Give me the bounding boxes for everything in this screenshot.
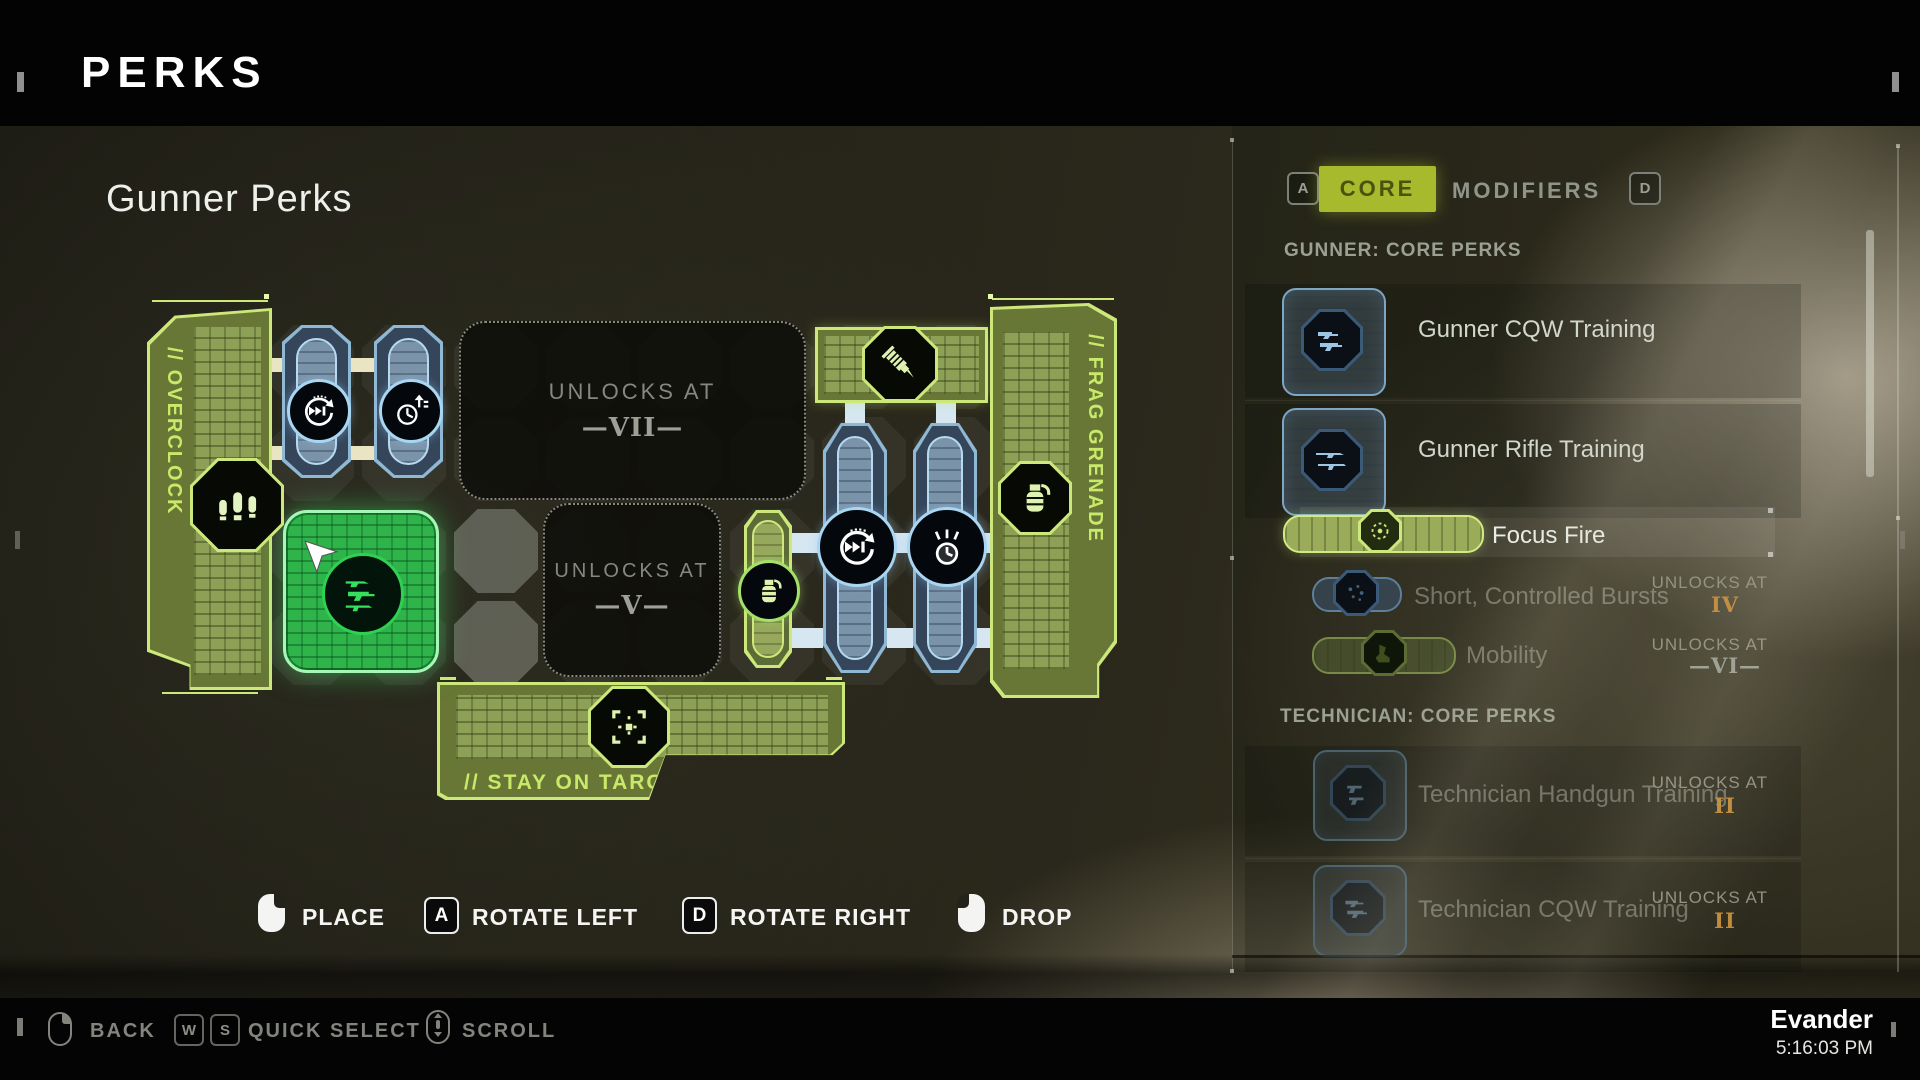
- cursor-icon: [302, 538, 340, 581]
- connector: [845, 403, 865, 425]
- boot-icon: [1361, 630, 1407, 676]
- rifle-icon: [1301, 429, 1363, 491]
- unlock-text: UNLOCKS AT: [554, 560, 709, 583]
- perks-screen: PERKS Gunner Perks UNLOCK: [0, 0, 1920, 1080]
- edge-dot: [1896, 516, 1900, 520]
- board-cell-highlight[interactable]: [454, 601, 538, 685]
- tab-core[interactable]: CORE: [1319, 166, 1436, 212]
- edge-dot: [1896, 144, 1900, 148]
- divider-dot: [1230, 556, 1234, 560]
- perk-name: Short, Controlled Bursts: [1414, 583, 1669, 611]
- unlock-level: —VI—: [1648, 653, 1768, 678]
- key-d-label: D: [693, 905, 707, 927]
- unlock-level: IV: [1648, 592, 1768, 617]
- bracket-line: [162, 692, 258, 694]
- bracket-line: [992, 298, 1114, 300]
- burst-icon: [1333, 570, 1379, 616]
- board-cell-highlight[interactable]: [454, 509, 538, 593]
- key-a-label: A: [435, 905, 449, 927]
- divider-dot: [1230, 138, 1234, 142]
- clock: 5:16:03 PM: [1770, 1038, 1873, 1060]
- unlock-at-label: UNLOCKS AT: [1648, 773, 1768, 793]
- key-w[interactable]: W: [174, 1014, 204, 1046]
- unlock-text: UNLOCKS AT: [549, 379, 717, 405]
- mouse-left-icon: [258, 894, 285, 932]
- selection-dot: [1768, 508, 1773, 513]
- row-separator: [1245, 858, 1801, 859]
- bracket-line: [440, 677, 456, 680]
- decor-dash: [17, 1018, 23, 1036]
- gun-icon: [1301, 309, 1363, 371]
- player-name: Evander: [1770, 1004, 1873, 1035]
- unlock-level: —VII—: [582, 413, 684, 443]
- player-info: Evander 5:16:03 PM: [1770, 1004, 1873, 1060]
- handgun-icon: [1330, 765, 1386, 821]
- drop-label: DROP: [1002, 904, 1072, 931]
- perk-name: Gunner CQW Training: [1418, 316, 1655, 344]
- piece-label: // FRAG GRENADE: [1083, 334, 1106, 543]
- connector: [351, 358, 374, 372]
- tab-next-key[interactable]: D: [1629, 172, 1661, 205]
- back-label[interactable]: BACK: [90, 1020, 156, 1043]
- tab-modifiers-label: MODIFIERS: [1452, 178, 1601, 203]
- unlock-at-label: UNLOCKS AT: [1648, 573, 1768, 593]
- row-separator: [1245, 400, 1801, 401]
- stim-dart-icon: [862, 326, 938, 402]
- piece-label: // OVERCLOCK: [162, 347, 185, 515]
- quick-select-label: QUICK SELECT: [248, 1020, 421, 1043]
- key-a[interactable]: A: [424, 897, 459, 934]
- key-w-label: W: [182, 1022, 196, 1039]
- mouse-scroll-icon: [426, 1010, 450, 1044]
- target-icon: [1358, 509, 1402, 553]
- key-s[interactable]: S: [210, 1014, 240, 1046]
- bracket-line: [826, 677, 842, 680]
- section-title-technician: TECHNICIAN: CORE PERKS: [1280, 706, 1556, 728]
- rotate-right-label: ROTATE RIGHT: [730, 904, 911, 931]
- panel-scrollbar[interactable]: [1866, 230, 1874, 477]
- connector: [351, 446, 374, 460]
- page-title: PERKS: [81, 48, 268, 98]
- scroll-label: SCROLL: [462, 1020, 556, 1043]
- bracket-dot: [988, 294, 993, 299]
- decor-dash-right: [1892, 72, 1899, 92]
- main-area: Gunner Perks UNLOCKS AT —VII—: [0, 126, 1920, 998]
- top-bar: PERKS: [0, 0, 1920, 126]
- tab-prev-key-label: A: [1298, 180, 1309, 197]
- tab-core-label: CORE: [1340, 176, 1416, 202]
- reload-speed-icon: [817, 507, 897, 587]
- bullets-icon: [190, 458, 284, 552]
- key-s-label: S: [220, 1022, 230, 1039]
- connector: [936, 403, 956, 425]
- place-label: PLACE: [302, 904, 385, 931]
- crosshair-icon: [588, 686, 670, 768]
- grenade-icon: [738, 560, 800, 622]
- tab-prev-key[interactable]: A: [1287, 172, 1319, 205]
- locked-slot-vii: UNLOCKS AT —VII—: [459, 321, 806, 500]
- perk-name: Gunner Rifle Training: [1418, 436, 1645, 464]
- divider-dot: [1230, 969, 1234, 973]
- cooldown-icon: [379, 379, 443, 443]
- grenade-cook-icon: [907, 507, 987, 587]
- connector: [887, 628, 913, 648]
- bracket-dot: [264, 294, 269, 299]
- dragged-perk-piece[interactable]: [283, 510, 439, 673]
- panel-bottom-line: [1232, 955, 1920, 958]
- tab-modifiers[interactable]: MODIFIERS: [1452, 178, 1601, 204]
- unlock-level: II: [1648, 793, 1768, 818]
- rotate-left-label: ROTATE LEFT: [472, 904, 638, 931]
- key-d[interactable]: D: [682, 897, 717, 934]
- perk-name: Mobility: [1466, 642, 1547, 670]
- footer-bar: BACK W S QUICK SELECT SCROLL Evander 5:1…: [0, 998, 1920, 1080]
- locked-slot-v: UNLOCKS AT —V—: [543, 503, 721, 677]
- bracket-line: [152, 300, 268, 302]
- panel-edge-line: [1897, 146, 1899, 972]
- grenade-icon: [998, 461, 1072, 535]
- selection-dot: [1768, 552, 1773, 557]
- tab-next-key-label: D: [1640, 180, 1651, 197]
- unlock-level: II: [1648, 908, 1768, 933]
- decor-dash: [1891, 1022, 1896, 1037]
- section-title-gunner: GUNNER: CORE PERKS: [1284, 240, 1522, 262]
- perk-name: Focus Fire: [1492, 522, 1605, 550]
- reload-speed-icon: [287, 379, 351, 443]
- gun-icon: [1330, 880, 1386, 936]
- decor-dash-left: [17, 72, 24, 92]
- mouse-right-icon: [958, 894, 985, 932]
- unlock-at-label: UNLOCKS AT: [1648, 888, 1768, 908]
- unlock-level: —V—: [594, 591, 669, 621]
- unlock-at-label: UNLOCKS AT: [1648, 635, 1768, 655]
- mouse-right-icon: [48, 1012, 72, 1046]
- connector: [791, 628, 823, 648]
